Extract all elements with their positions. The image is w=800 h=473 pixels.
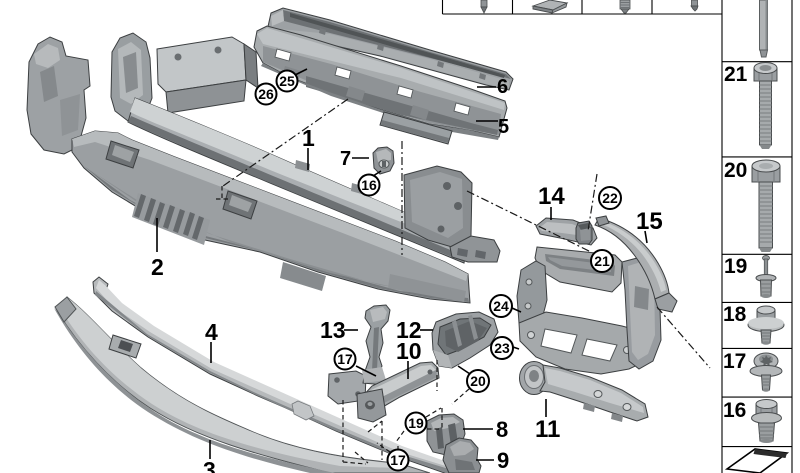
svg-text:20: 20: [470, 373, 486, 389]
svg-text:2: 2: [151, 254, 164, 280]
svg-text:19: 19: [724, 255, 747, 278]
svg-text:19: 19: [408, 415, 424, 431]
svg-text:23: 23: [494, 340, 510, 356]
svg-text:7: 7: [340, 148, 351, 170]
svg-text:8: 8: [496, 417, 508, 442]
svg-text:1: 1: [302, 125, 315, 151]
svg-text:18: 18: [723, 303, 747, 326]
svg-text:9: 9: [497, 448, 509, 473]
svg-text:5: 5: [498, 116, 509, 138]
svg-text:3: 3: [203, 457, 216, 473]
svg-text:17: 17: [723, 350, 746, 373]
svg-text:17: 17: [390, 452, 406, 468]
svg-text:22: 22: [602, 190, 618, 206]
svg-text:21: 21: [724, 63, 748, 86]
svg-text:21: 21: [594, 253, 610, 269]
svg-text:17: 17: [337, 351, 353, 367]
svg-text:16: 16: [723, 399, 746, 422]
svg-text:13: 13: [320, 317, 346, 343]
svg-text:12: 12: [396, 317, 422, 343]
svg-text:24: 24: [493, 298, 509, 314]
svg-text:20: 20: [724, 159, 747, 182]
svg-text:6: 6: [497, 76, 508, 98]
svg-text:16: 16: [361, 177, 377, 193]
svg-text:25: 25: [279, 73, 295, 89]
svg-text:14: 14: [538, 183, 565, 210]
svg-text:4: 4: [205, 319, 218, 345]
svg-text:15: 15: [636, 208, 663, 235]
svg-text:26: 26: [258, 86, 274, 102]
svg-text:11: 11: [535, 416, 560, 443]
